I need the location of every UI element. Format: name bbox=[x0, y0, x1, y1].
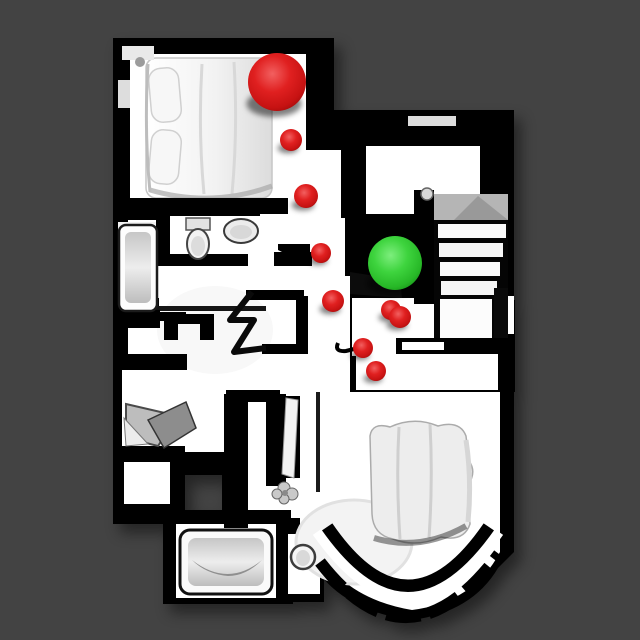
waypoint-sphere bbox=[353, 338, 373, 358]
stair-tread bbox=[439, 243, 503, 257]
start-sphere bbox=[248, 53, 306, 111]
waypoint-sphere bbox=[280, 129, 302, 151]
bathtub-basin bbox=[188, 538, 264, 586]
stair-tread bbox=[440, 262, 500, 276]
bathtub-basin bbox=[125, 232, 151, 303]
waypoint-sphere bbox=[389, 306, 411, 328]
stair-tread bbox=[440, 299, 492, 339]
stair-tread bbox=[441, 281, 497, 295]
scan-viewer[interactable] bbox=[0, 0, 640, 640]
stair-stringer bbox=[414, 190, 434, 304]
waypoint-sphere bbox=[366, 361, 386, 381]
waypoint-sphere bbox=[294, 184, 318, 208]
couch bbox=[370, 421, 473, 543]
pillow bbox=[148, 129, 183, 185]
sink-basin bbox=[230, 225, 252, 239]
doorway-lintel bbox=[408, 116, 456, 126]
goal-sphere bbox=[368, 236, 422, 290]
pillow bbox=[148, 67, 183, 123]
toilet-bowl bbox=[296, 550, 310, 566]
stair-tread bbox=[438, 224, 506, 238]
waypoint-sphere bbox=[322, 290, 344, 312]
toilet-bowl bbox=[191, 236, 205, 256]
house-floorplan bbox=[113, 38, 515, 620]
floorplan-scan-view bbox=[0, 0, 640, 640]
waypoint-sphere bbox=[311, 243, 331, 263]
closet-object bbox=[135, 57, 145, 67]
newel-post bbox=[421, 188, 433, 200]
closet-floor bbox=[124, 462, 170, 510]
half-wall-top bbox=[402, 342, 444, 350]
closet-shelf bbox=[118, 80, 130, 108]
